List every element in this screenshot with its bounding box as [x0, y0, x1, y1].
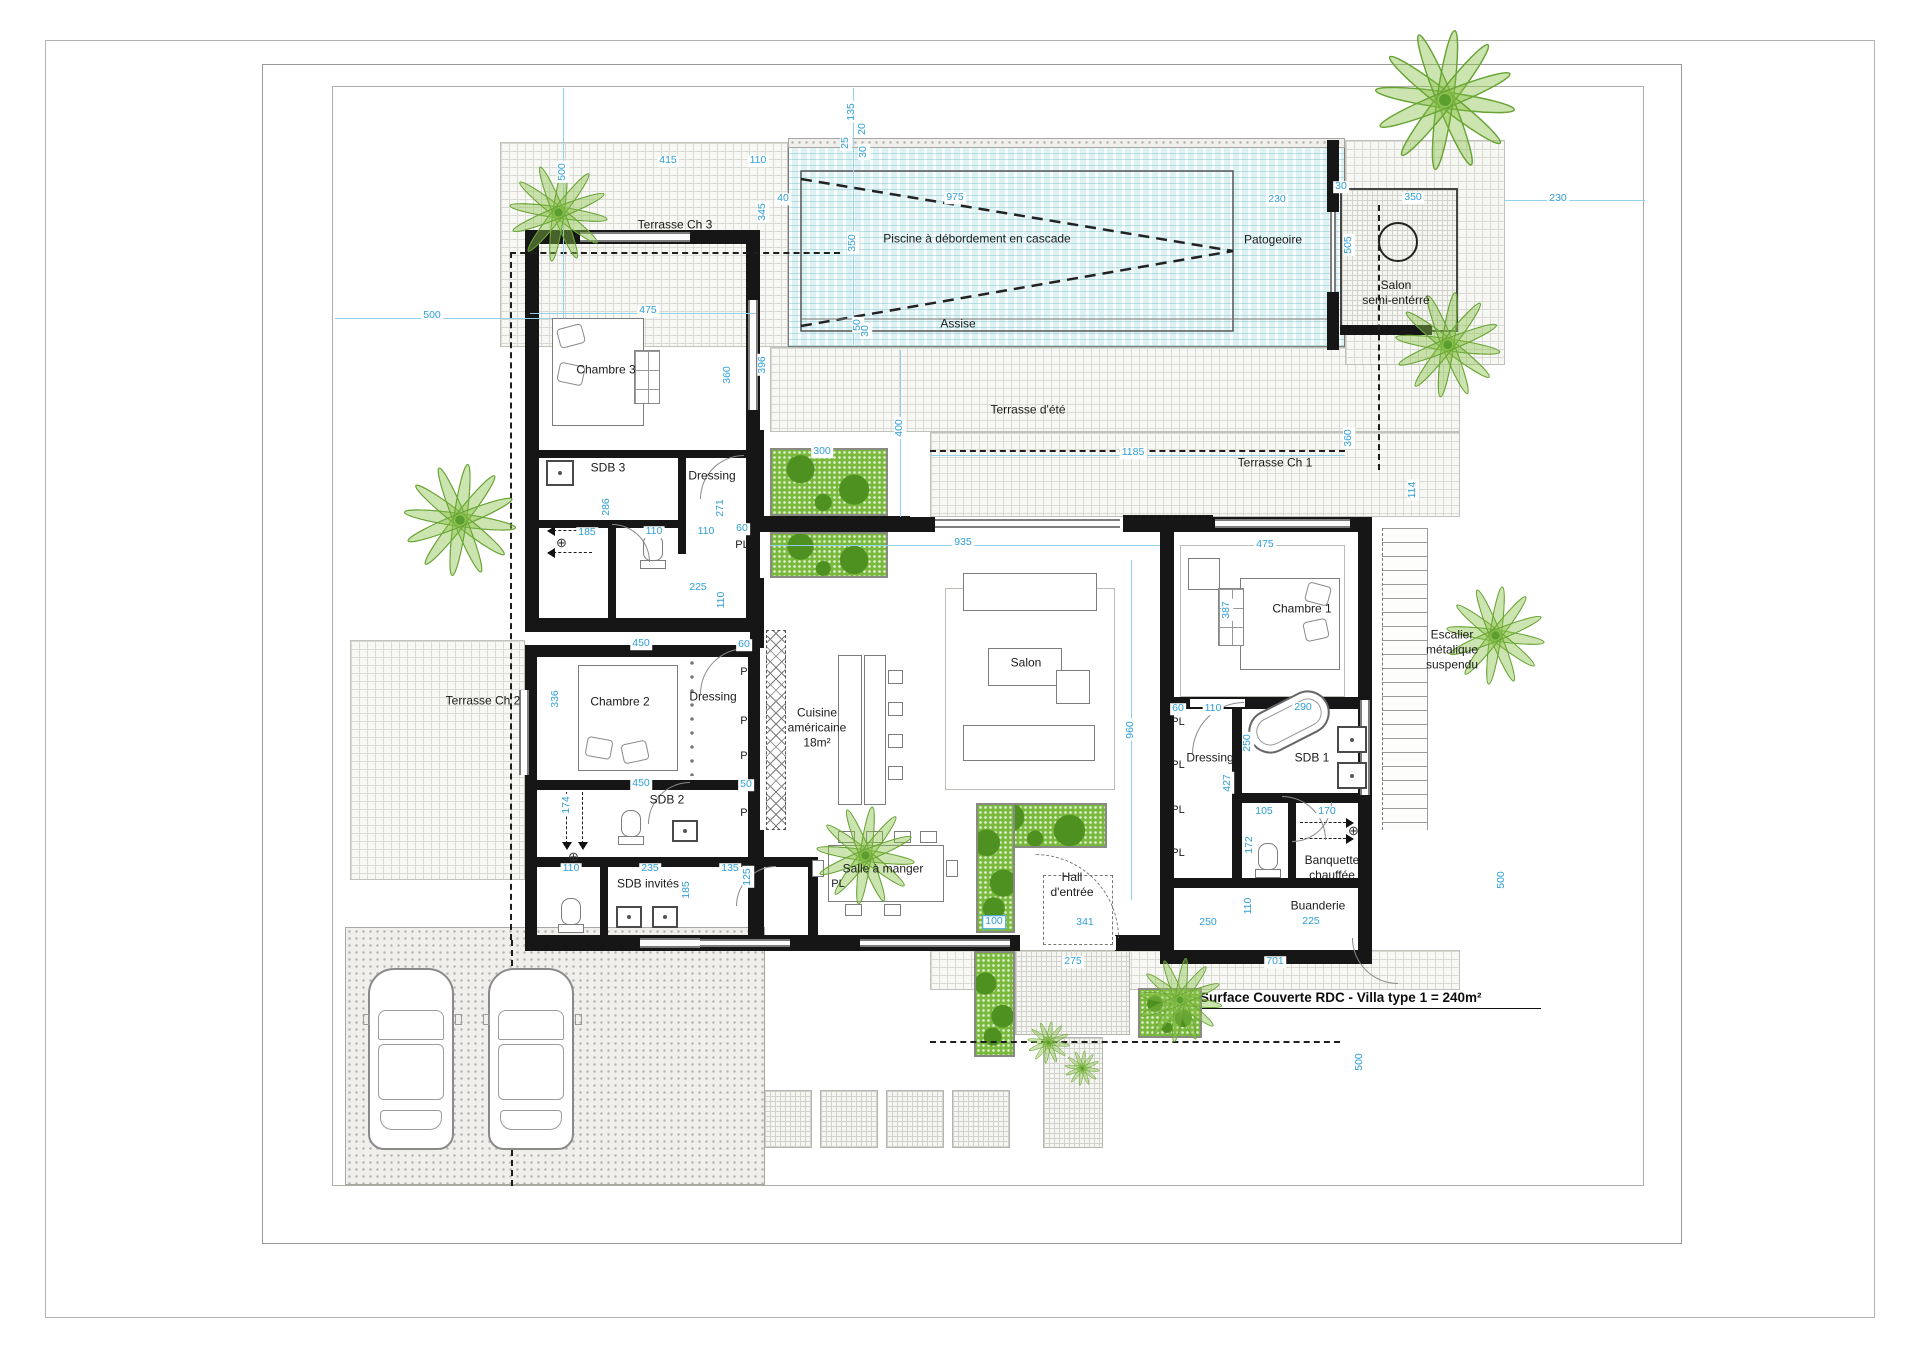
sink	[1337, 726, 1367, 753]
wall-segment	[750, 516, 910, 532]
dimension-label: 110	[696, 526, 717, 538]
room-label-banquette-chauffee: Banquette chauffée	[1305, 853, 1360, 883]
car-rear	[500, 1110, 562, 1130]
wall-segment	[678, 458, 686, 554]
floor-plan-sheet: { "annotation": { "text": "Surface Couve…	[0, 0, 1920, 1358]
room-label-salle-a-manger: Salle à manger	[843, 862, 924, 877]
dimension-label: 185	[681, 879, 693, 901]
closet-label: PL	[735, 539, 748, 551]
room-label-sdb1: SDB 1	[1295, 751, 1330, 766]
room-label-chambre2: Chambre 2	[590, 695, 649, 710]
room-label-sdb3: SDB 3	[591, 461, 626, 476]
dimension-label: 110	[716, 590, 728, 611]
closet-label: PL	[1171, 804, 1184, 816]
toilet-bowl	[621, 810, 641, 837]
dimension-label: 25	[840, 135, 852, 151]
dashed-line	[510, 252, 840, 254]
room-label-cuisine: Cuisine américaine 18m²	[788, 706, 847, 751]
car-roof	[498, 1044, 564, 1100]
dimension-label: 360	[722, 364, 734, 386]
dimension-label: 350	[1402, 192, 1424, 204]
car-mirror	[363, 1014, 370, 1025]
closet-label: PL	[1171, 716, 1184, 728]
wall-segment	[525, 230, 539, 632]
window	[860, 939, 1010, 947]
dimension-label: 250	[1242, 732, 1254, 754]
pillow	[584, 736, 613, 760]
dimension-label: 174	[561, 794, 573, 816]
dimension-label: 230	[1547, 193, 1569, 205]
closet-label: PL	[740, 666, 753, 678]
dimension-label: 185	[576, 527, 598, 539]
closet-label: PL	[740, 807, 753, 819]
dimension-label: 60	[736, 639, 752, 651]
sink	[652, 906, 678, 928]
planter-bed	[1138, 988, 1202, 1038]
dimension-label: 701	[1264, 956, 1286, 968]
dimension-line	[853, 88, 854, 345]
dimension-label: 110	[561, 863, 582, 875]
arrow-head	[542, 526, 555, 536]
shower-arrow	[582, 792, 583, 844]
shower-drain: ⊕	[556, 536, 570, 550]
room-label-dressing3: Dressing	[688, 469, 735, 484]
dimension-label: 350	[847, 232, 859, 254]
wall-segment	[750, 430, 764, 518]
room-label-dressing2: Dressing	[689, 690, 736, 705]
dimension-label: 110	[748, 155, 769, 167]
dimension-label: 500	[421, 310, 443, 322]
paver-slab	[1043, 1037, 1103, 1148]
terrace-hatch	[930, 432, 1460, 517]
dimension-label: 225	[1300, 916, 1322, 928]
room-label-sdb2: SDB 2	[650, 793, 685, 808]
dimension-label: 230	[1266, 194, 1288, 206]
dimension-label: 170	[1316, 806, 1338, 818]
arrow-head	[542, 548, 555, 558]
dimension-label: 341	[1074, 917, 1096, 929]
planter-bed	[770, 532, 888, 578]
planter-bed	[770, 448, 888, 516]
dimension-line	[335, 318, 563, 319]
dimension-label: 40	[775, 193, 791, 205]
room-label-chambre1: Chambre 1	[1272, 602, 1331, 617]
dimension-label: 387	[1221, 599, 1233, 621]
dining-chair	[866, 831, 883, 843]
room-label-assise: Assise	[940, 317, 975, 332]
kitchen-cabinet-strip	[766, 630, 786, 830]
wall-segment	[905, 517, 935, 532]
dimension-label: 110	[1243, 896, 1255, 917]
dimension-label: 135	[719, 863, 741, 875]
room-label-patogeoire: Patogeoire	[1244, 233, 1302, 248]
planter-bed	[976, 803, 1015, 933]
furniture	[963, 573, 1097, 611]
window	[700, 939, 790, 947]
dimension-label: 50	[738, 779, 754, 791]
wall-segment	[525, 618, 760, 632]
plan-canvas: Surface Couverte RDC - Villa type 1 = 24…	[0, 0, 1920, 1358]
dining-chair	[884, 904, 901, 916]
dimension-label: 290	[1292, 702, 1314, 714]
dining-chair	[946, 860, 958, 877]
surface-note: Surface Couverte RDC - Villa type 1 = 24…	[1200, 990, 1541, 1009]
dimension-label: 475	[1254, 539, 1276, 551]
dimension-label: 135	[846, 101, 858, 123]
dining-chair	[838, 831, 855, 843]
toilet-bowl	[1258, 843, 1278, 870]
window	[580, 232, 690, 242]
room-label-salon: Salon	[1011, 656, 1042, 671]
room-label-hall-entree: Hall d'entrée	[1051, 870, 1094, 900]
toilet-bowl	[561, 898, 581, 925]
dimension-label: 114	[1407, 480, 1419, 501]
dimension-label: 500	[1354, 1051, 1366, 1073]
dimension-label: 400	[894, 417, 906, 439]
terrace-hatch	[350, 640, 525, 880]
car-rear	[380, 1110, 442, 1130]
dimension-label: 415	[657, 155, 679, 167]
furniture	[963, 725, 1095, 761]
dimension-label: 360	[1343, 427, 1355, 449]
dimension-label: 30	[858, 144, 870, 160]
dimension-label: 30	[860, 323, 872, 339]
window	[935, 519, 1120, 528]
dimension-label: 100	[982, 915, 1006, 929]
wall-segment	[1327, 140, 1339, 212]
bar-stool	[888, 766, 903, 780]
dining-chair	[845, 904, 862, 916]
furniture	[1056, 670, 1090, 704]
sink	[1337, 762, 1367, 789]
dashed-line	[510, 252, 512, 940]
suspended-staircase	[1382, 528, 1428, 830]
bar-stool	[888, 702, 903, 716]
room-label-chambre3: Chambre 3	[576, 363, 635, 378]
dimension-label: 450	[630, 778, 652, 790]
car	[488, 968, 574, 1150]
dimension-label: 235	[639, 863, 661, 875]
dimension-label: 505	[1343, 234, 1355, 256]
wall-segment	[525, 645, 537, 935]
paver-slab	[886, 1090, 944, 1148]
dimension-label: 275	[1062, 956, 1084, 968]
car-mirror	[455, 1014, 462, 1025]
room-label-buanderie: Buanderie	[1291, 899, 1346, 914]
dimension-label: 300	[811, 446, 833, 458]
dimension-label: 110	[1203, 703, 1224, 715]
dimension-label: 250	[1197, 917, 1219, 929]
dimension-label: 20	[857, 121, 869, 137]
dimension-label: 450	[630, 638, 652, 650]
dimension-label: 60	[1170, 703, 1186, 715]
dimension-label: 30	[1333, 181, 1349, 193]
wall-segment	[600, 865, 608, 935]
dimension-label: 960	[1125, 719, 1137, 741]
sink	[616, 906, 642, 928]
dimension-label: 60	[734, 523, 750, 535]
car-roof	[378, 1044, 444, 1100]
dimension-label: 500	[1496, 869, 1508, 891]
wall-segment	[525, 450, 760, 458]
dimension-label: 396	[757, 354, 769, 376]
closet-label: PL	[740, 750, 753, 762]
toilet-tank	[618, 836, 644, 845]
car-windshield	[378, 1010, 444, 1040]
dimension-label: 105	[1253, 806, 1275, 818]
bar-stool	[888, 734, 903, 748]
closet-label: PL	[1171, 759, 1184, 771]
furniture	[1188, 558, 1220, 590]
dashed-line	[930, 1041, 1340, 1043]
dashed-line	[1378, 205, 1380, 470]
room-label-terrasse-ch2: Terrasse Ch 2	[446, 694, 521, 709]
toilet-tank	[558, 924, 584, 933]
pool-edge-strip	[788, 138, 1345, 148]
car-mirror	[575, 1014, 582, 1025]
room-label-salon-semi-enterre: Salon semi-entérré	[1362, 278, 1429, 308]
dimension-label: 336	[550, 688, 562, 710]
dimension-label: 345	[757, 201, 769, 223]
sink	[546, 460, 574, 486]
closet-label: PL	[740, 715, 753, 727]
dimension-label: 500	[557, 161, 569, 183]
window	[1330, 212, 1336, 292]
side-cabinet	[634, 350, 660, 404]
wall-segment	[1115, 935, 1160, 951]
room-label-escalier: Escalier métalique suspendu	[1426, 628, 1478, 673]
dimension-label: 225	[687, 582, 709, 594]
window	[1215, 519, 1350, 528]
room-label-dressing1: Dressing	[1186, 751, 1233, 766]
toilet-tank	[1255, 869, 1281, 878]
bar-stool	[888, 670, 903, 684]
dimension-label: 286	[601, 496, 613, 518]
dimension-label: 1185	[1120, 447, 1147, 459]
dining-chair	[920, 831, 937, 843]
car-windshield	[498, 1010, 564, 1040]
wall-segment	[750, 578, 764, 648]
dimension-label: 475	[637, 305, 659, 317]
furniture	[864, 655, 886, 805]
room-label-terrasse-ch1: Terrasse Ch 1	[1238, 456, 1313, 471]
paver-slab	[952, 1090, 1010, 1148]
hanger-rail-dots	[688, 656, 698, 776]
dimension-label: 935	[952, 537, 974, 549]
dimension-label: 125	[742, 866, 754, 888]
closet-label: PL	[1171, 847, 1184, 859]
dimension-label: 110	[644, 526, 665, 538]
wall-segment	[1160, 532, 1174, 952]
dimension-line	[1505, 200, 1645, 201]
wall-segment	[1327, 292, 1339, 350]
dimension-label: 271	[715, 497, 727, 519]
room-label-piscine: Piscine à débordement en cascade	[883, 232, 1070, 247]
paver-slab	[820, 1090, 878, 1148]
room-label-terrasse-ch3: Terrasse Ch 3	[638, 218, 713, 233]
dining-chair	[894, 831, 911, 843]
dining-chair	[812, 860, 824, 877]
dimension-label: 172	[1244, 834, 1256, 856]
shower-drain: ⊕	[1348, 824, 1362, 838]
car-mirror	[483, 1014, 490, 1025]
wall-segment	[1340, 325, 1432, 335]
room-label-terrasse-ete: Terrasse d'été	[991, 403, 1066, 418]
window	[640, 938, 700, 948]
dimension-label: 427	[1222, 772, 1234, 794]
dimension-label: 975	[944, 192, 966, 204]
fire-pit	[1378, 222, 1418, 262]
dimension-line	[563, 88, 564, 318]
room-label-sdb-invites: SDB invités	[617, 877, 679, 892]
car	[368, 968, 454, 1150]
closet-label: PL	[831, 878, 844, 890]
